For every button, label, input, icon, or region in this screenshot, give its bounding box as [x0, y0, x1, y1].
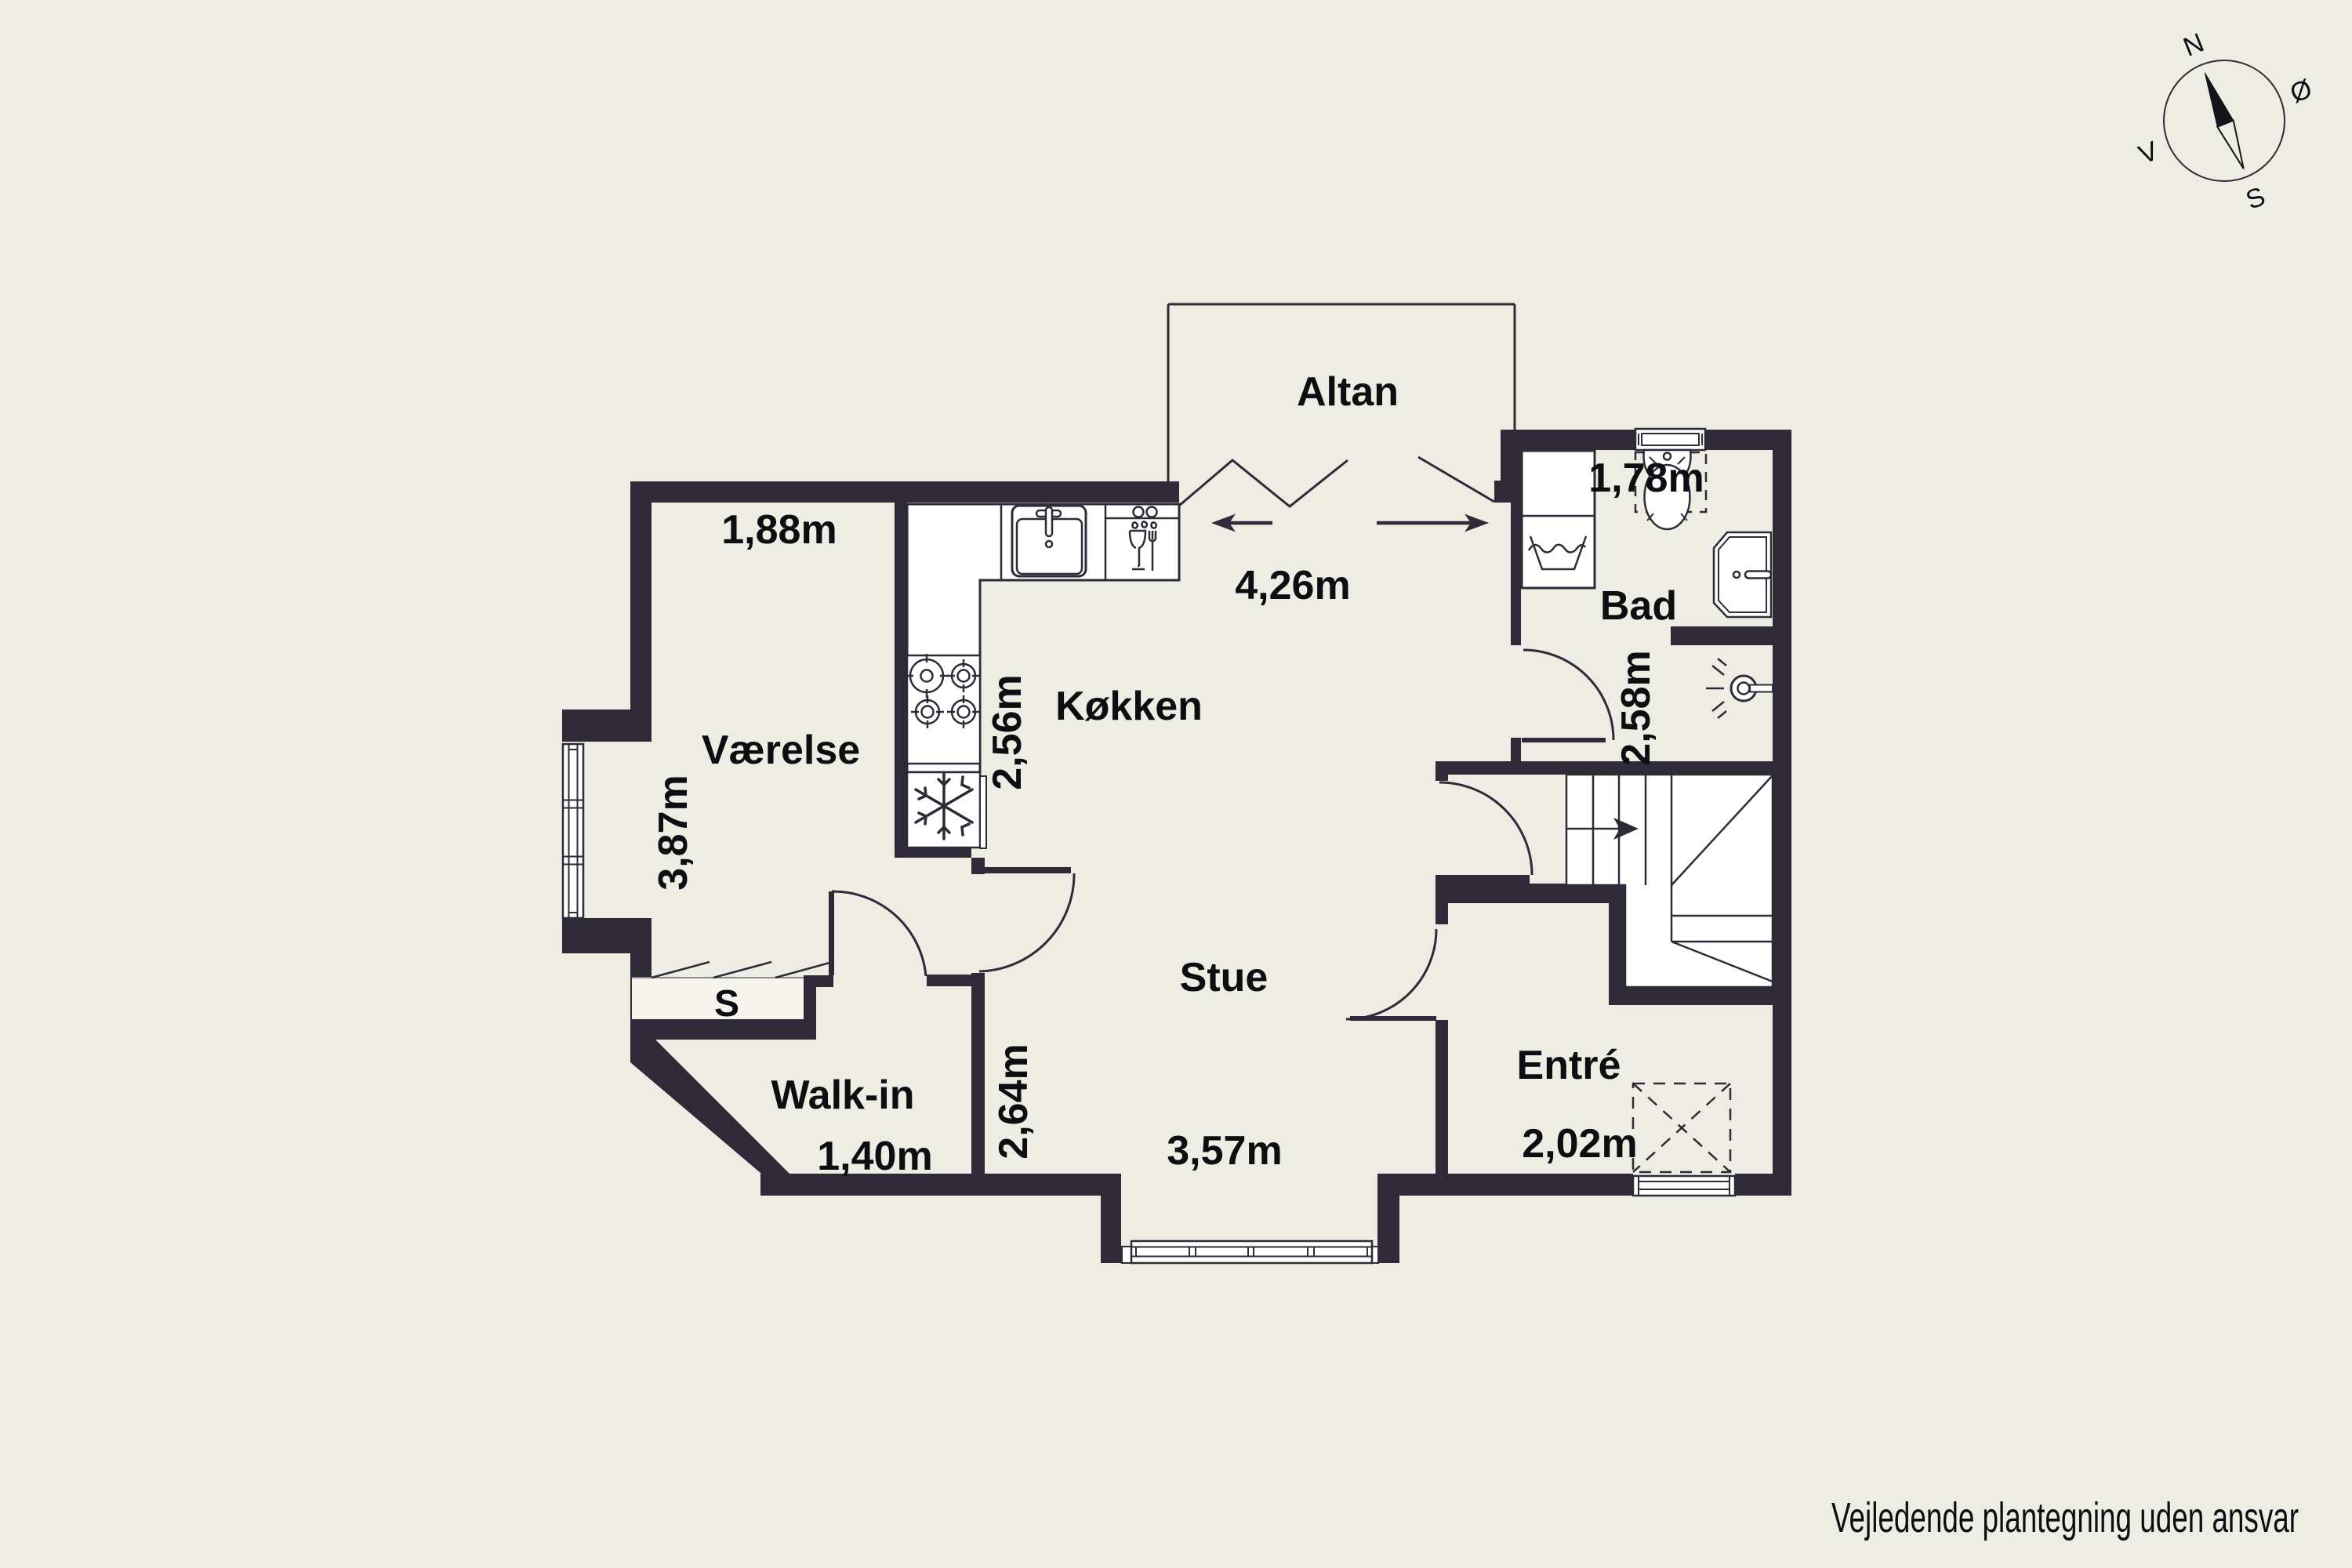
svg-text:2,56m: 2,56m	[985, 674, 1030, 789]
svg-text:Walk-in: Walk-in	[771, 1073, 915, 1118]
svg-text:Stue: Stue	[1180, 955, 1269, 1000]
svg-text:Bad: Bad	[1600, 583, 1677, 629]
svg-text:Altan: Altan	[1297, 369, 1399, 415]
svg-text:S: S	[714, 983, 739, 1025]
svg-text:3,57m: 3,57m	[1167, 1128, 1282, 1174]
svg-text:Køkken: Køkken	[1055, 684, 1203, 729]
svg-text:2,58m: 2,58m	[1613, 650, 1659, 765]
svg-text:Vejledende plantegning uden an: Vejledende plantegning uden ansvar	[1831, 1494, 2299, 1541]
svg-text:Værelse: Værelse	[702, 728, 860, 773]
svg-text:3,87m: 3,87m	[651, 775, 696, 890]
svg-text:1,88m: 1,88m	[721, 507, 837, 553]
svg-text:4,26m: 4,26m	[1235, 563, 1350, 608]
svg-text:1,40m: 1,40m	[817, 1134, 932, 1179]
svg-text:2,64m: 2,64m	[991, 1044, 1036, 1159]
svg-text:Entré: Entré	[1517, 1043, 1621, 1088]
svg-text:1,78m: 1,78m	[1588, 456, 1704, 501]
svg-text:2,02m: 2,02m	[1522, 1121, 1637, 1167]
